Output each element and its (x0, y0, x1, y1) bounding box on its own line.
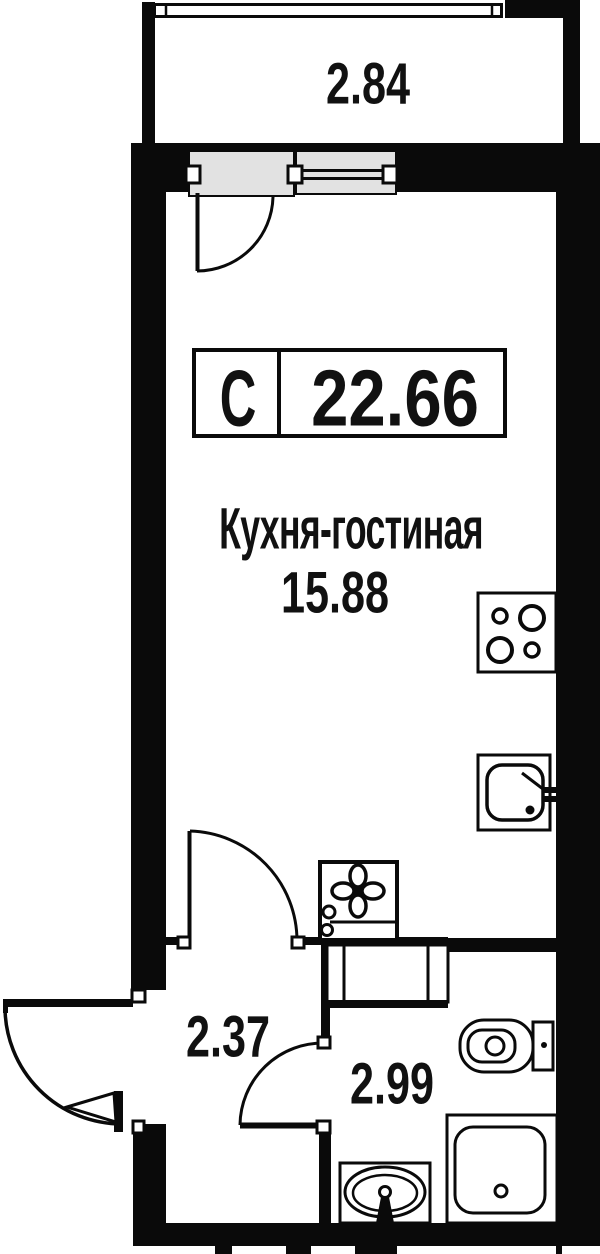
shower-tray-icon (447, 1115, 557, 1223)
hallway-area-label: 2.37 (186, 1008, 270, 1066)
bathroom-area-label: 2.99 (350, 1055, 434, 1113)
kitchen-living-area-label: 15.88 (281, 564, 389, 622)
area-badge: С 22.66 (192, 348, 507, 438)
badge-total-area: 22.66 (311, 358, 479, 438)
toilet-icon (460, 1020, 553, 1072)
plan-symbols (0, 0, 600, 1254)
balcony-door-icon (197, 193, 273, 271)
entrance-door-icon (5, 990, 145, 1133)
window-frame-posts (186, 166, 397, 183)
kitchen-living-name-label: Кухня-гостиная (219, 500, 483, 558)
badge-type-label: С (220, 358, 257, 438)
floor-plan: С 22.66 2.84 Кухня-гостиная 15.88 2.37 2… (0, 0, 600, 1254)
washing-machine-icon (320, 862, 397, 940)
living-room-door-icon (178, 831, 304, 948)
kitchen-sink-icon (478, 755, 557, 830)
washbasin-icon (340, 1163, 430, 1223)
duct-cabinet-icon (325, 945, 448, 1008)
badge-divider (277, 352, 281, 434)
stove-icon (478, 593, 556, 672)
balcony-area-label: 2.84 (326, 55, 410, 113)
